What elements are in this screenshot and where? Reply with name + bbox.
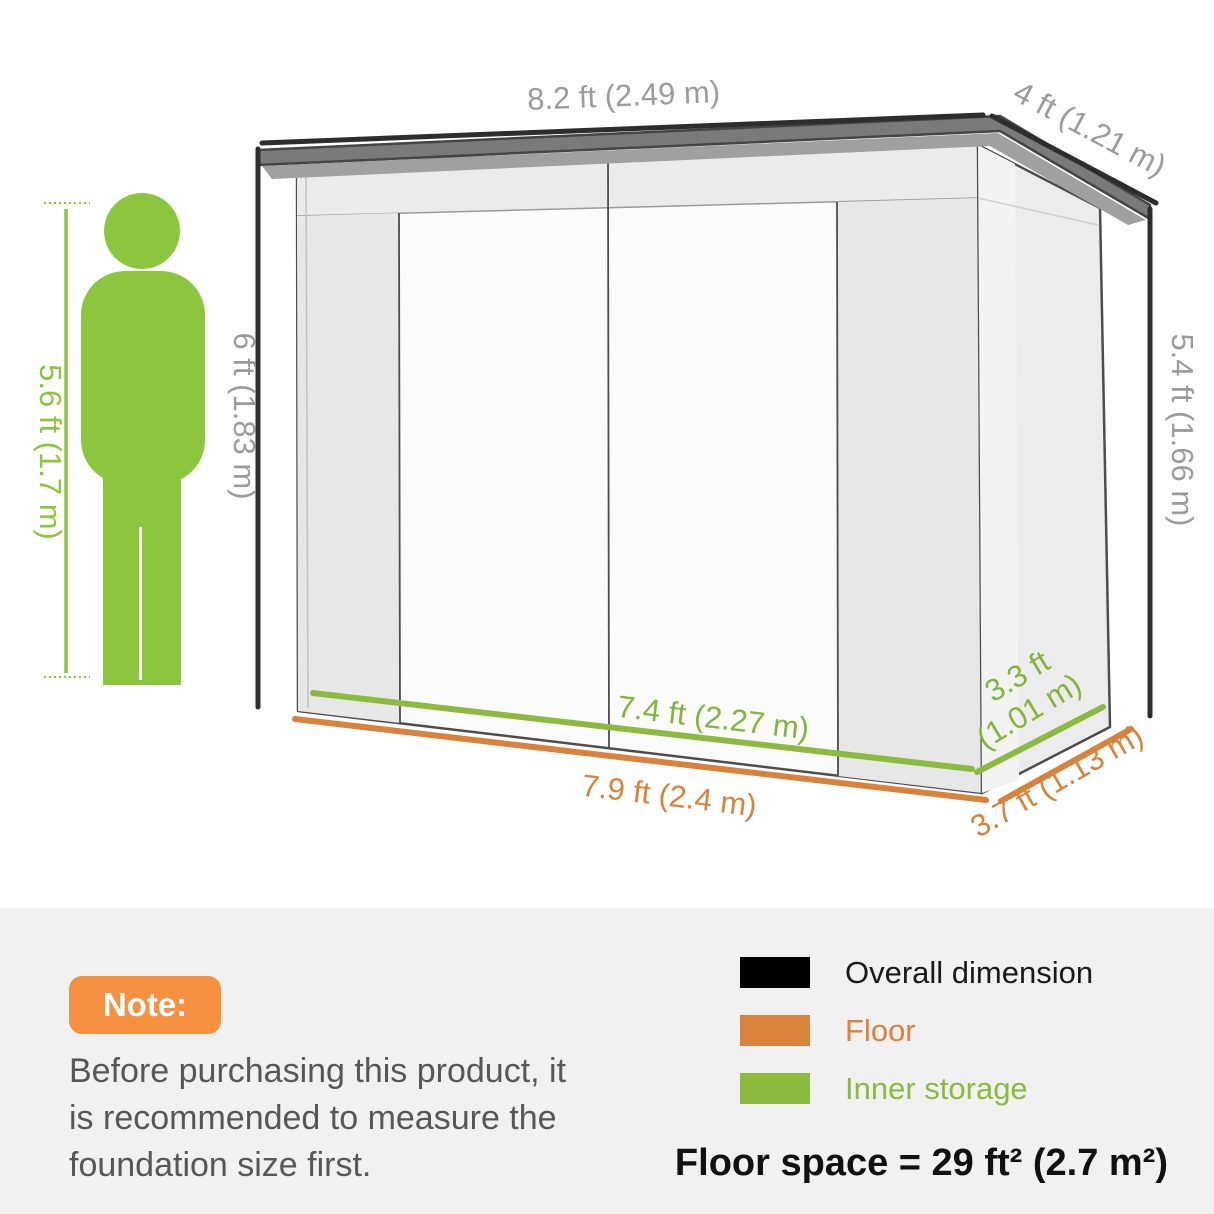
legend-swatch-inner-storage: [740, 1073, 810, 1104]
shed-right-panel: [837, 198, 982, 793]
door-left-edge: [399, 213, 400, 723]
shed-dimension-diagram: 5.6 ft (1.7 m): [0, 0, 1214, 1214]
person-height-label: 5.6 ft (1.7 m): [33, 364, 68, 540]
note-badge-label: Note:: [103, 986, 187, 1024]
height-right-label: 5.4 ft (1.66 m): [1165, 334, 1200, 527]
height-left-label: 6 ft (1.83 m): [227, 332, 262, 499]
note-text-line1: Before purchasing this product, it: [69, 1048, 689, 1095]
legend-label-inner-storage: Inner storage: [845, 1071, 1028, 1107]
legend-row-inner-storage: Inner storage: [740, 1073, 1093, 1104]
person-head: [104, 193, 180, 269]
shed-drawing: 5.6 ft (1.7 m): [0, 0, 1214, 908]
note-text-line3: foundation size first.: [69, 1142, 689, 1189]
roof-width-label: 8.2 ft (2.49 m): [526, 74, 720, 117]
legend-swatch-overall: [740, 957, 810, 988]
person-figure: [81, 193, 205, 685]
note-badge: Note:: [69, 976, 221, 1034]
legend-swatch-floor: [740, 1015, 810, 1046]
floor-space-text: Floor space = 29 ft² (2.7 m²): [675, 1142, 1168, 1185]
door-center-divider: [608, 158, 609, 748]
legend-label-overall: Overall dimension: [845, 955, 1093, 991]
info-panel: Note: Before purchasing this product, it…: [0, 908, 1214, 1214]
legend: Overall dimension Floor Inner storage: [740, 957, 1093, 1131]
shed-left-panel: [297, 213, 400, 723]
legend-row-overall: Overall dimension: [740, 957, 1093, 988]
note-text: Before purchasing this product, it is re…: [69, 1048, 689, 1189]
floor-width-label: 7.9 ft (2.4 m): [580, 768, 759, 824]
note-text-line2: is recommended to measure the: [69, 1095, 689, 1142]
door-right-edge: [837, 202, 838, 776]
legend-label-floor: Floor: [845, 1013, 916, 1049]
legend-row-floor: Floor: [740, 1015, 1093, 1046]
